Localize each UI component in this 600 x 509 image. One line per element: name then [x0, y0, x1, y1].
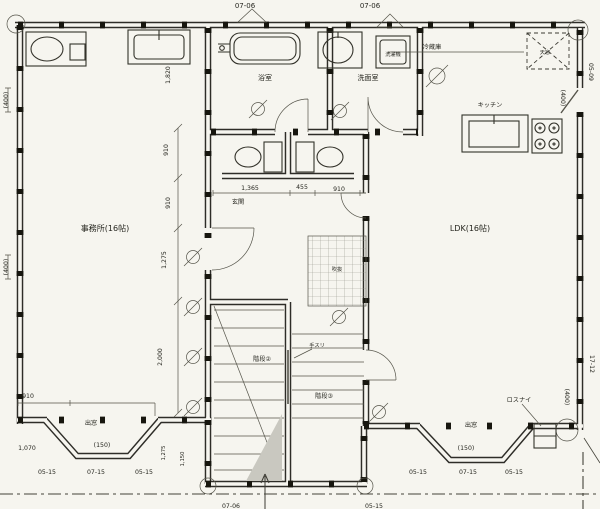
kitchen-label: キッチン — [478, 102, 503, 109]
grid-top-2: 07-06 — [360, 2, 381, 10]
dim-1070: 1,070 — [18, 445, 36, 452]
stair-right — [288, 334, 364, 418]
office-door — [212, 228, 254, 270]
refrigerator-label: 冷蔵庫 — [423, 43, 442, 51]
toilet-right — [296, 142, 343, 172]
grid-right-bottom: 17-12 — [588, 355, 595, 373]
grid-br-2: 07-15 — [459, 469, 477, 476]
down-arrow — [261, 474, 269, 509]
washing-machine-label: 洗濯機 — [385, 50, 401, 58]
office-sink-unit — [128, 30, 190, 64]
dim-910b: 910 — [165, 197, 172, 209]
bathroom-label: 浴室 — [258, 73, 272, 82]
office-label: 事務所(16帖) — [81, 223, 129, 233]
grid-bl-1: 05-15 — [38, 469, 56, 476]
handrail-label: 手スリ — [309, 341, 325, 349]
dim-left-top: (400) — [3, 92, 10, 109]
bay-left-label: 出窓 — [85, 419, 97, 427]
floor-plan-drawing: 事務所(16帖) LDK(16帖) 浴室 洗面室 キッチン 玄関 階段② 階段③… — [0, 0, 600, 509]
dim-stair-1150: 1,150 — [180, 452, 186, 467]
kitchen-stove — [532, 119, 562, 153]
dim-150-r: (150) — [458, 445, 475, 452]
dim-mid-910: 910 — [333, 186, 345, 193]
dim-1820: 1,820 — [165, 66, 172, 84]
stair-right-label: 階段③ — [315, 392, 333, 400]
grid-bm-1: 07-06 — [222, 503, 240, 509]
bay-right-label: 出窓 — [465, 421, 477, 429]
dim-2000: 2,000 — [157, 348, 164, 366]
grid-bl-3: 05-15 — [135, 469, 153, 476]
wall-post-marks — [18, 25, 585, 484]
walls — [15, 22, 585, 484]
dim-1275: 1,275 — [161, 251, 168, 269]
office-vanity — [26, 32, 86, 66]
dim-left-mid: (400) — [3, 259, 10, 276]
ldk-label: LDK(16帖) — [450, 223, 490, 233]
grid-top-1: 07-06 — [235, 2, 256, 10]
kitchen-counter-sink — [462, 115, 528, 152]
washroom-basin — [318, 32, 362, 68]
lossnay-label: ロスナイ — [507, 397, 532, 404]
dim-455: 455 — [296, 184, 308, 191]
toilet-left — [235, 142, 282, 172]
grid-bm-2: 05-15 — [365, 503, 383, 509]
dim-stair-1275: 1,275 — [161, 446, 167, 461]
dimension-lines — [5, 9, 403, 417]
dim-910a: 910 — [163, 144, 170, 156]
grid-br-3: 05-15 — [505, 469, 523, 476]
washroom-label: 洗面室 — [358, 73, 379, 82]
grid-bl-2: 07-15 — [87, 469, 105, 476]
ldk-stair-door — [366, 350, 396, 380]
stair-left — [214, 306, 284, 481]
floor-plan-svg: 事務所(16帖) LDK(16帖) 浴室 洗面室 キッチン 玄関 階段② 階段③… — [0, 0, 600, 509]
skylight-label: 天窓 — [540, 48, 550, 56]
washroom-door — [368, 97, 403, 132]
grid-right-top: 05-09 — [587, 63, 594, 81]
dim-right-upper: (400) — [559, 90, 566, 107]
stair-left-label: 階段② — [253, 355, 271, 363]
grid-br-1: 05-15 — [409, 469, 427, 476]
dim-right-lower: (400) — [563, 389, 570, 406]
dim-bay-910: 910 — [22, 393, 34, 400]
dim-150-l: (150) — [94, 442, 111, 449]
stair-shade — [246, 414, 282, 481]
void-label: 吹抜 — [332, 265, 343, 273]
bathroom-door — [275, 99, 308, 132]
dim-1365: 1,365 — [241, 185, 259, 192]
hall-ldk-door — [341, 193, 366, 218]
entrance-label: 玄関 — [232, 198, 244, 206]
bathtub — [218, 33, 300, 64]
